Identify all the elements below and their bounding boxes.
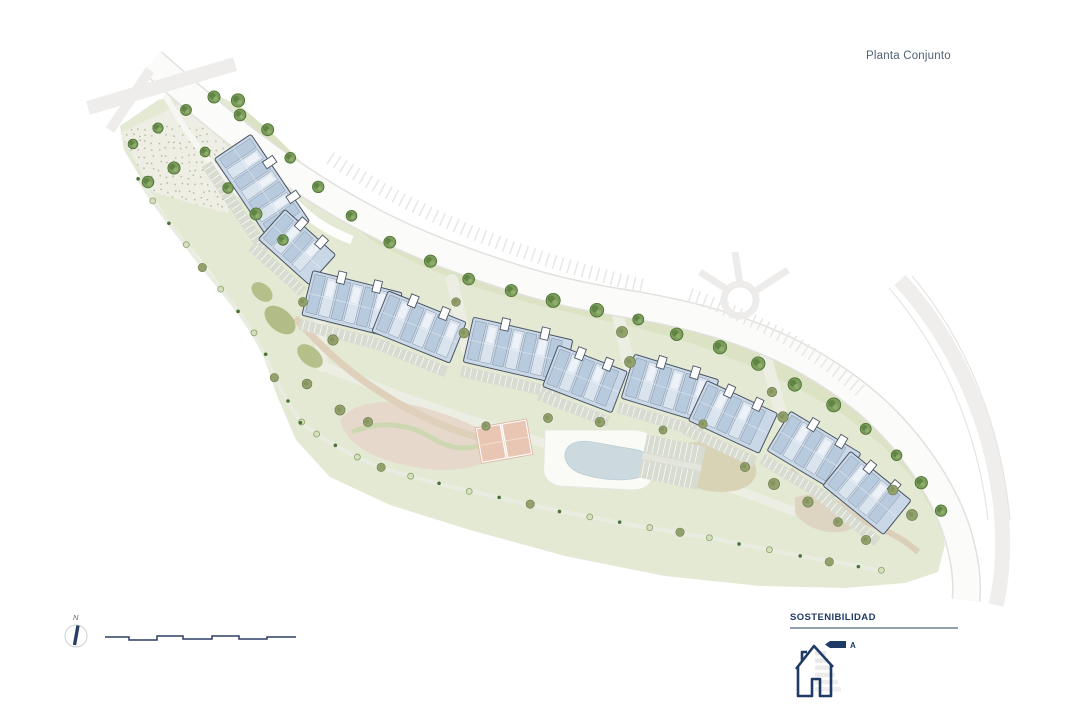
sheet: Planta Conjunto N SOSTENIBILIDAD — [0, 0, 1080, 720]
roundabout — [700, 252, 788, 316]
scale-bar-steps — [105, 636, 296, 640]
north-compass-icon: N — [58, 610, 98, 656]
legend-heading: SOSTENIBILIDAD — [790, 612, 960, 623]
legend-rule — [790, 627, 958, 629]
page-title: Planta Conjunto — [866, 50, 951, 62]
energy-rating-block: A — [790, 633, 960, 710]
rating-arrow — [825, 641, 846, 648]
sustainability-legend: SOSTENIBILIDAD A — [790, 612, 960, 710]
scale-bar — [100, 628, 310, 653]
energy-house-icon: A — [790, 633, 960, 705]
scale-bar-line — [100, 628, 310, 648]
rating-letter: A — [850, 641, 856, 650]
north-label: N — [73, 613, 79, 622]
north-compass: N — [58, 610, 98, 661]
